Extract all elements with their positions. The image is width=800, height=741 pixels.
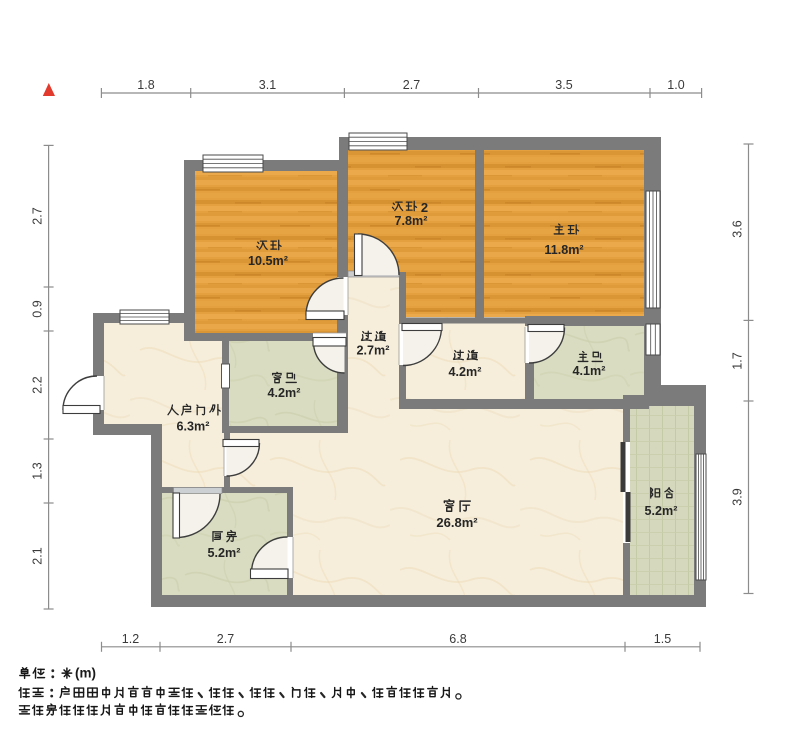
svg-text:5.2m²: 5.2m²	[208, 546, 241, 560]
svg-text:1.2: 1.2	[122, 632, 139, 646]
svg-text:2.7m²: 2.7m²	[357, 344, 390, 358]
svg-text:5.2m²: 5.2m²	[645, 504, 678, 518]
svg-text:4.1m²: 4.1m²	[573, 364, 606, 378]
svg-text:2.2: 2.2	[31, 376, 45, 393]
svg-text:2.1: 2.1	[31, 547, 45, 564]
svg-text:2.7: 2.7	[217, 632, 234, 646]
svg-text:11.8m²: 11.8m²	[544, 243, 583, 257]
svg-text:3.6: 3.6	[731, 220, 745, 237]
svg-text:2.7: 2.7	[403, 78, 420, 92]
svg-text:3.5: 3.5	[555, 78, 572, 92]
svg-text:1.5: 1.5	[654, 632, 671, 646]
svg-text:2.7: 2.7	[31, 207, 45, 224]
svg-text:6.8: 6.8	[449, 632, 466, 646]
svg-text:1.0: 1.0	[667, 78, 684, 92]
svg-text:(m): (m)	[75, 666, 96, 681]
svg-text:7.8m²: 7.8m²	[395, 214, 428, 228]
svg-text:6.3m²: 6.3m²	[177, 420, 210, 434]
svg-text:10.5m²: 10.5m²	[248, 254, 288, 268]
svg-text:1.3: 1.3	[31, 462, 45, 479]
svg-text:1.8: 1.8	[137, 78, 154, 92]
svg-text:3.9: 3.9	[731, 488, 745, 505]
svg-text:4.2m²: 4.2m²	[268, 386, 301, 400]
svg-text:3.1: 3.1	[259, 78, 276, 92]
svg-text:4.2m²: 4.2m²	[449, 365, 482, 379]
svg-text:1.7: 1.7	[731, 352, 745, 369]
svg-text:0.9: 0.9	[31, 300, 45, 317]
svg-text:2: 2	[421, 200, 428, 215]
svg-text:26.8m²: 26.8m²	[436, 515, 478, 530]
